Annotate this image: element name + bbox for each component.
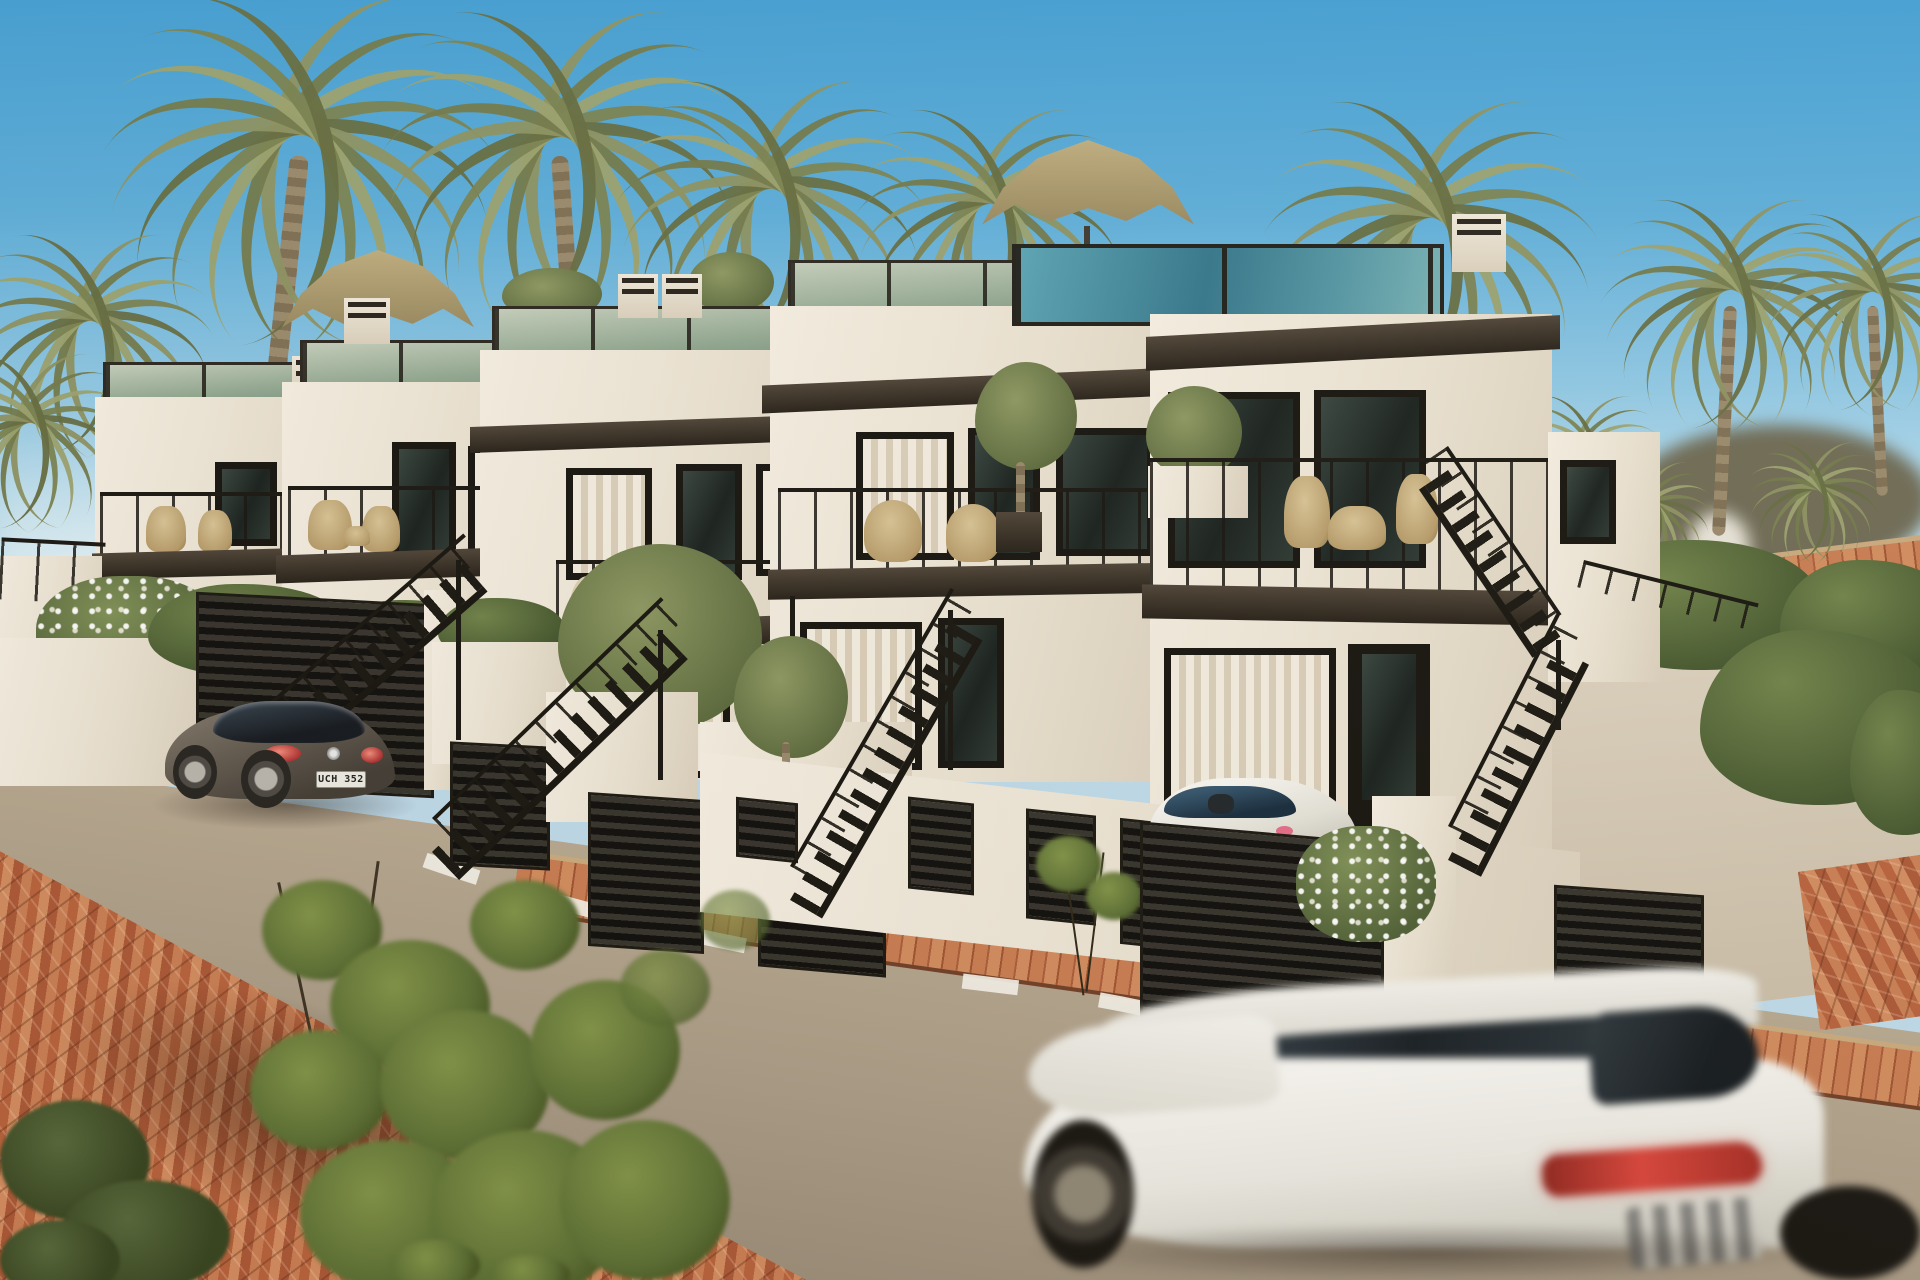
stair-post: [456, 560, 461, 740]
door-glass: [1362, 654, 1416, 800]
beetle-taillight: [361, 747, 383, 763]
beetle-wheel: [241, 750, 291, 808]
wicker-chair: [146, 506, 186, 552]
suv-shadow: [1020, 1222, 1840, 1280]
sapling-leaves: [1086, 872, 1142, 920]
plant-pot: [996, 512, 1042, 552]
flowering-shrub: [1296, 826, 1436, 942]
papasan-chair: [946, 504, 1000, 562]
annex-window: [1560, 460, 1616, 544]
vw-badge-icon: [327, 747, 340, 760]
beetle-rear-window: [213, 701, 365, 743]
beetle-car: UCH 352: [165, 695, 400, 815]
wicker-chair: [1284, 476, 1330, 548]
chimney-vents: [666, 278, 698, 294]
basement-vent: [736, 797, 798, 864]
stair-post: [948, 610, 953, 770]
garage-door: [588, 792, 704, 954]
street-scene: UCH 352: [0, 0, 1920, 1280]
basement-vent: [908, 797, 974, 896]
chimney: [1452, 214, 1506, 272]
window-glass: [1567, 467, 1609, 537]
suv-rear-window: [1587, 1002, 1761, 1105]
chimney-vents: [622, 278, 654, 294]
beetle-license-plate: UCH 352: [316, 771, 366, 788]
wicker-chair: [198, 510, 232, 552]
chimney-vents: [1457, 219, 1501, 241]
balcony-tree: [975, 362, 1077, 470]
coupe-seat: [1208, 794, 1234, 814]
chimney: [344, 298, 390, 344]
wicker-chair: [362, 506, 400, 552]
chimney: [662, 274, 702, 318]
patio-table: [1328, 506, 1386, 550]
potted-tree: [734, 636, 848, 758]
stair-post: [1556, 640, 1561, 730]
patio-table: [344, 526, 370, 546]
suv-bonnet: [1025, 1013, 1281, 1120]
papasan-chair: [864, 500, 922, 562]
beetle-wheel: [173, 745, 217, 799]
chimney: [618, 274, 658, 318]
suv-car: [1010, 950, 1920, 1280]
chimney-vents: [348, 302, 386, 320]
stair-post: [658, 630, 663, 780]
